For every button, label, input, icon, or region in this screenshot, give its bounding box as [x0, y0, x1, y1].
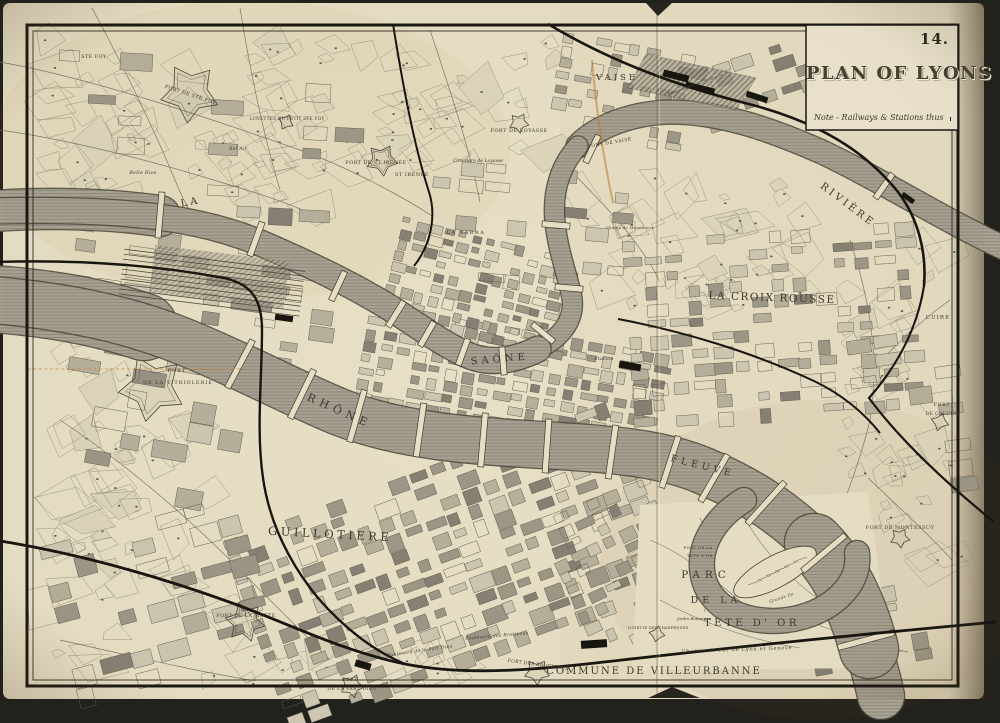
map-label-parc-line2: DE LA: [691, 595, 742, 606]
map-label-bel-air: Bel Air: [228, 146, 247, 152]
map-canvas: RIVIÈRELASAÔNERHÔNEFLEUVEVAISELA CROIX R…: [0, 0, 1000, 723]
map-label-parc-line3: TETE D' OR: [704, 618, 800, 629]
map-label-ste-foy: STE FOY: [81, 54, 107, 60]
map-label-champ-de-manoeuvre: Champ de Manoeuvre: [606, 225, 655, 230]
map-label-commune-villeurbanne: COMMUNE DE VILLEURBANNE: [546, 666, 762, 677]
map-label-fort-vitriolerie-line1: FORT: [168, 368, 187, 374]
map-label-cuire: CUIRE: [926, 315, 950, 321]
map-label-fort-caluire-line2: DE CALUIRE: [925, 411, 960, 417]
map-label-fort-part-dieu-line1: FORT: [342, 677, 358, 683]
map-label-fort-caluire-line1: FORT: [934, 402, 950, 408]
map-label-station: Station: [594, 356, 614, 362]
map-label-cimetiere-loyasse: Cimetière de Loyasse: [453, 157, 503, 164]
map-label-jardin-botanique: Jardin Botanique: [676, 616, 712, 621]
map-label-fort-tete-dor-line2: TETE D'OR: [687, 553, 713, 558]
map-label-fort-vitriolerie-line2: DE LA VITRIOLERIE: [143, 380, 213, 386]
map-label-fort-loyasse: FORT DE LOYASSE: [490, 128, 547, 134]
scanned-map-page: RIVIÈRELASAÔNERHÔNEFLEUVEVAISELA CROIX R…: [0, 0, 1000, 723]
map-label-lunette-des-charpennes: LUNETTE DES CHARPENNES: [628, 626, 689, 630]
map-label-parc-line1: PARC: [681, 569, 731, 581]
map-label-la-sarra: LA SARRA: [447, 230, 486, 236]
map-label-lunettes-petit-ste-foy: LUNETTES DU PETIT STE FOY: [249, 116, 324, 121]
map-label-fort-tete-dor-line1: FORT DE LA: [684, 545, 713, 550]
map-label-belle-rive: Belle Rive: [128, 170, 157, 176]
map-label-st-irenee: ST IRÉNÉE: [395, 170, 429, 178]
map-label-vaise: VAISE: [595, 73, 638, 83]
map-label-fort-la-motte: FORT DE LA MOTTE: [216, 613, 275, 619]
map-label-fort-part-dieu-line2: DE LA PART DIEU: [327, 686, 377, 692]
map-label-fort-montessuy: FORT DE MONTESSUY: [866, 525, 935, 531]
